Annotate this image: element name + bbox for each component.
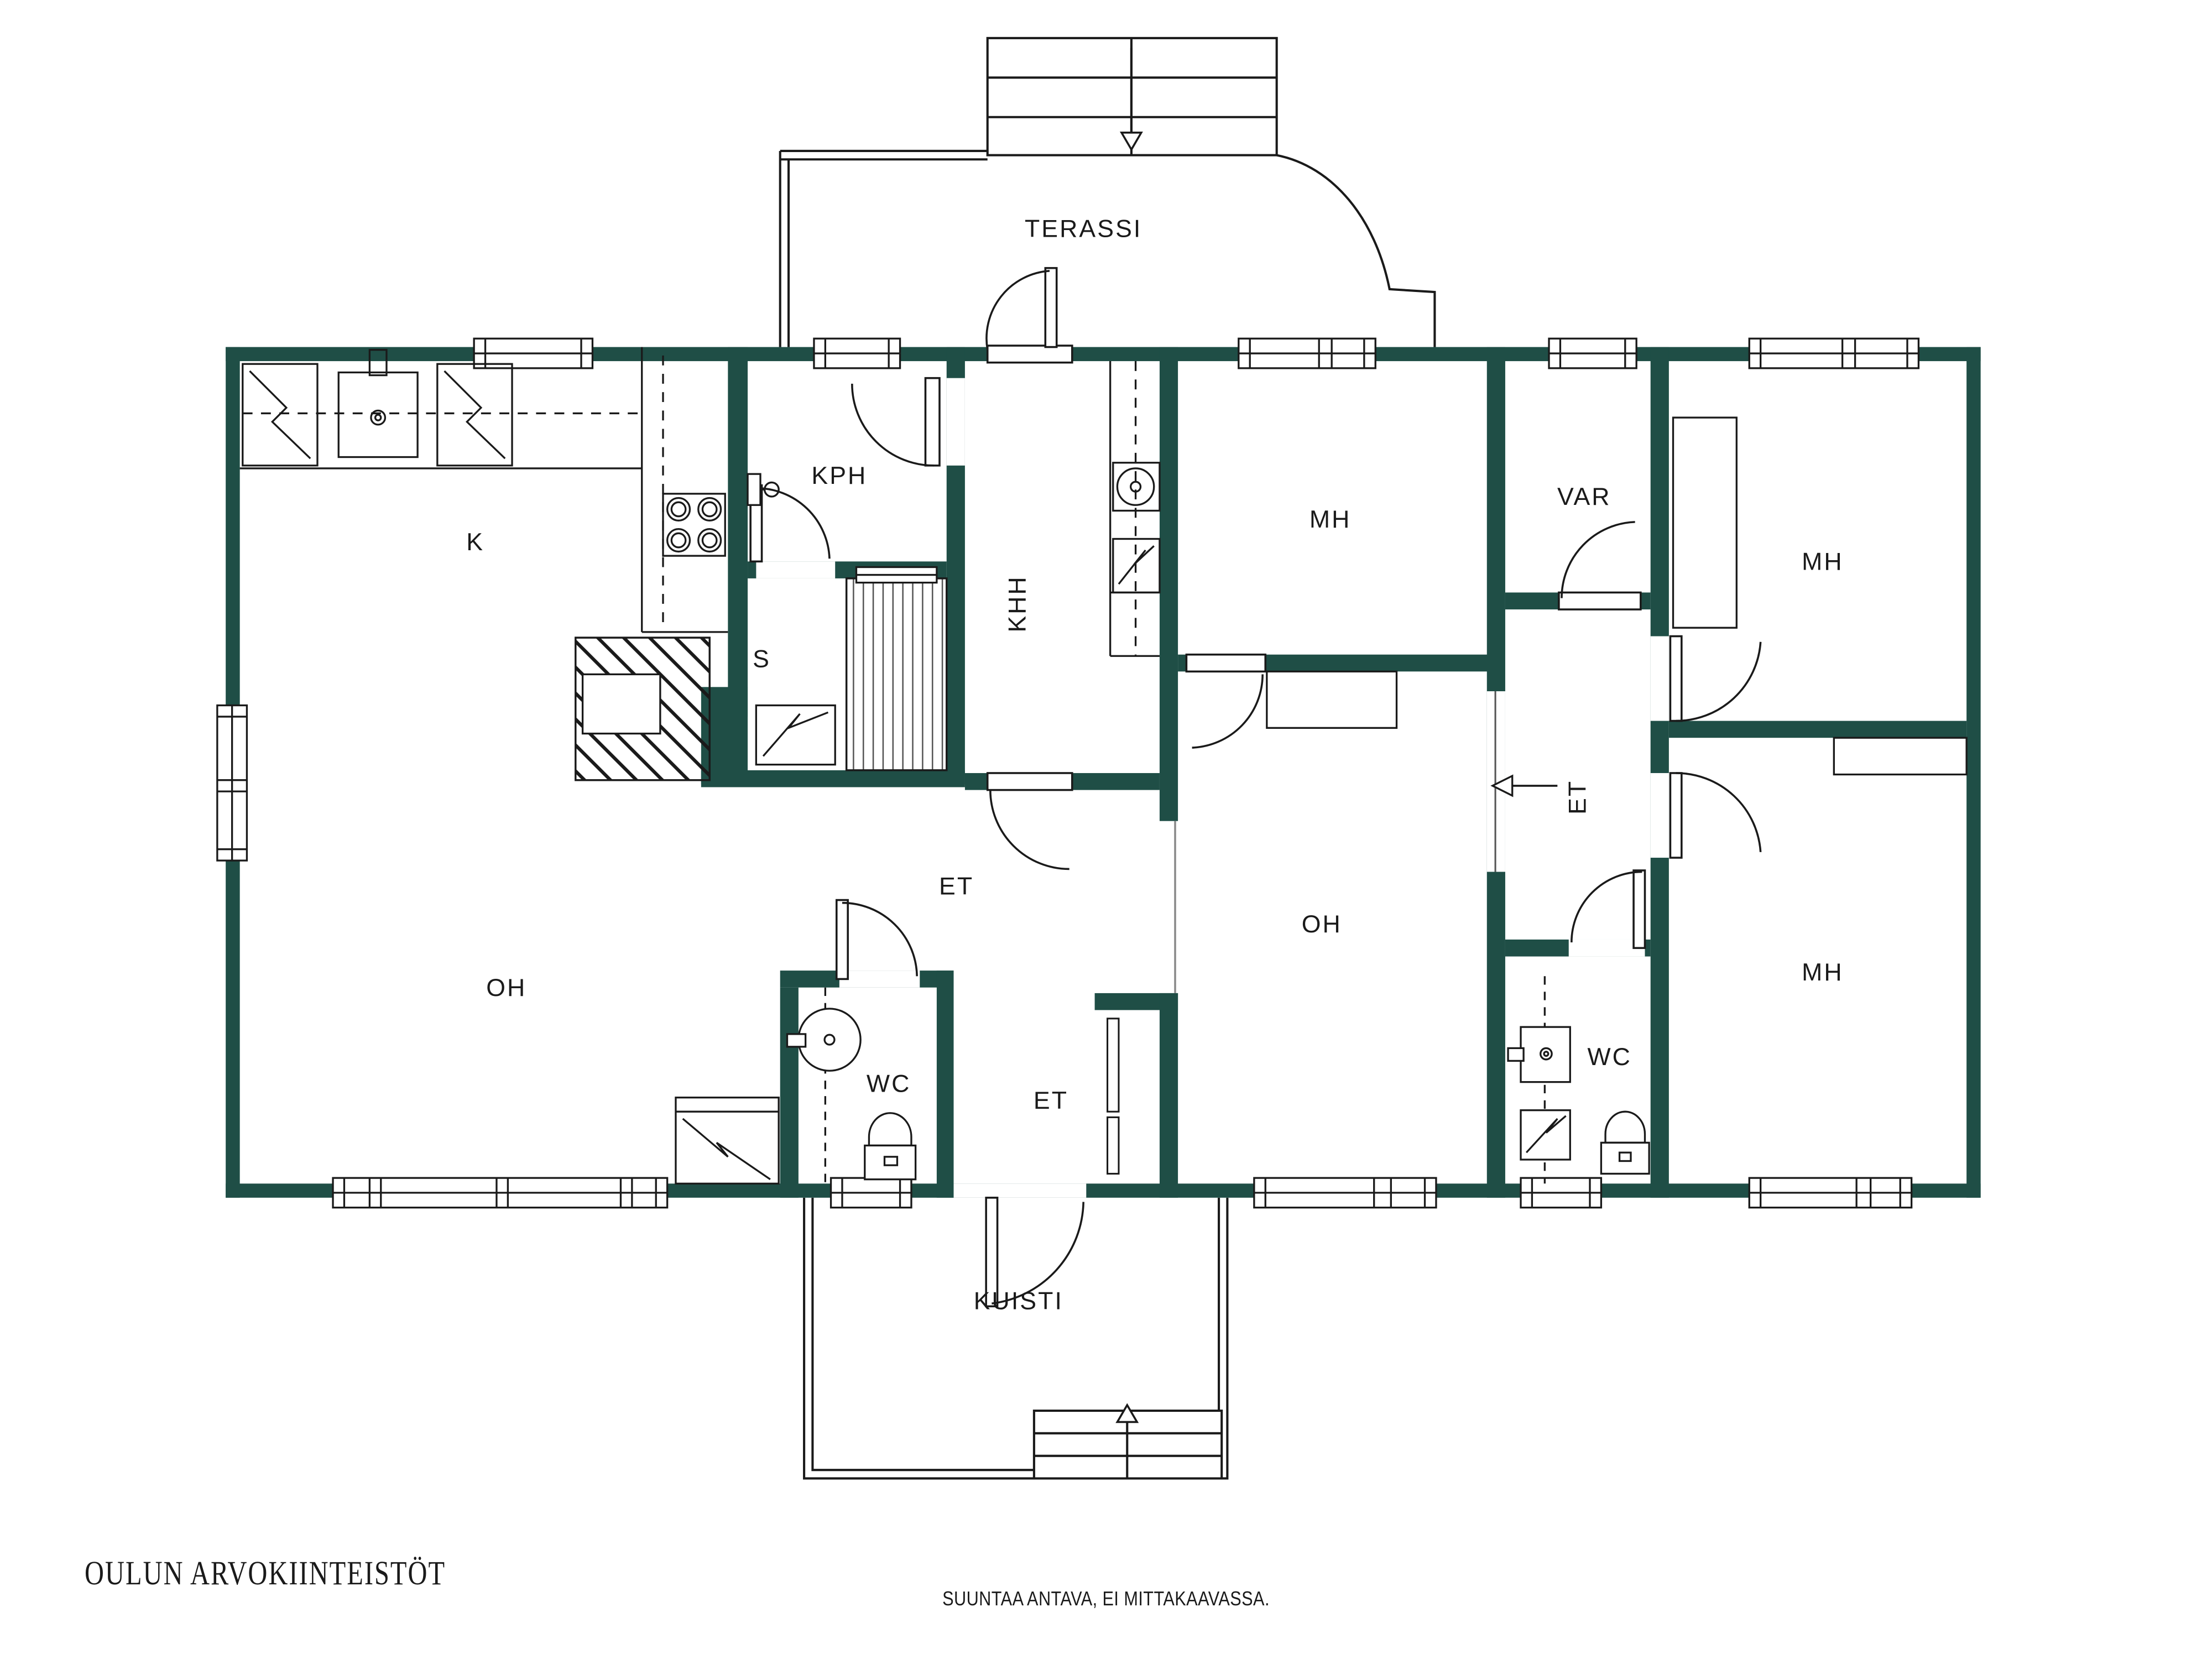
window [333,1178,667,1208]
chimney-block [576,638,709,780]
room-label-s: S [753,646,771,673]
entry-glazing [1108,1019,1119,1174]
sauna-benches [847,578,947,770]
room-label-oh-right: OH [1302,911,1342,938]
fireplace-icon [676,1098,779,1184]
window [1549,338,1636,368]
disclaimer-caption: SUUNTAA ANTAVA, EI MITTAKAAVASSA. [942,1588,1270,1610]
room-label-var: VAR [1557,483,1611,510]
window [1239,338,1375,368]
stairs-up-icon [1034,1405,1222,1479]
window [1749,338,1918,368]
wardrobe [1673,418,1737,628]
closet [1267,671,1397,728]
room-label-mh-2: MH [1802,549,1844,576]
room-label-et-middle: ET [939,873,974,900]
company-logo: OULUN ARVOKIINTEISTÖT [85,1554,446,1592]
room-label-mh-3: MH [1802,959,1844,986]
room-label-et-lower: ET [1034,1087,1068,1114]
toilet-icon [865,1113,916,1180]
room-label-kuisti: KUISTI [974,1287,1063,1314]
window [1749,1178,1911,1208]
room-label-wc-right: WC [1587,1044,1631,1071]
stairs-down-icon [988,38,1277,155]
room-label-oh-left: OH [486,974,526,1001]
floor-plan-page: TERASSI K KPH S KHH MH VAR MH ET ET OH O… [0,0,2212,1659]
window [814,338,900,368]
room-label-wc-left: WC [867,1070,911,1097]
water-heater-icon [1521,1110,1570,1160]
window [1254,1178,1436,1208]
floor-plan: TERASSI K KPH S KHH MH VAR MH ET ET OH O… [0,0,2212,1659]
window [831,1178,911,1208]
sauna-window [856,567,936,583]
room-label-et-right: ET [1564,780,1591,815]
toilet-icon [1601,1112,1649,1173]
sauna-heater-icon [756,706,835,765]
room-label-khh: KHH [1004,575,1031,632]
closet [1834,738,1966,774]
window [1521,1178,1601,1208]
room-label-kph: KPH [811,462,867,489]
room-label-mh-1: MH [1310,506,1352,533]
window [217,706,247,861]
room-label-terassi: TERASSI [1025,216,1142,243]
room-label-k: K [466,529,484,556]
